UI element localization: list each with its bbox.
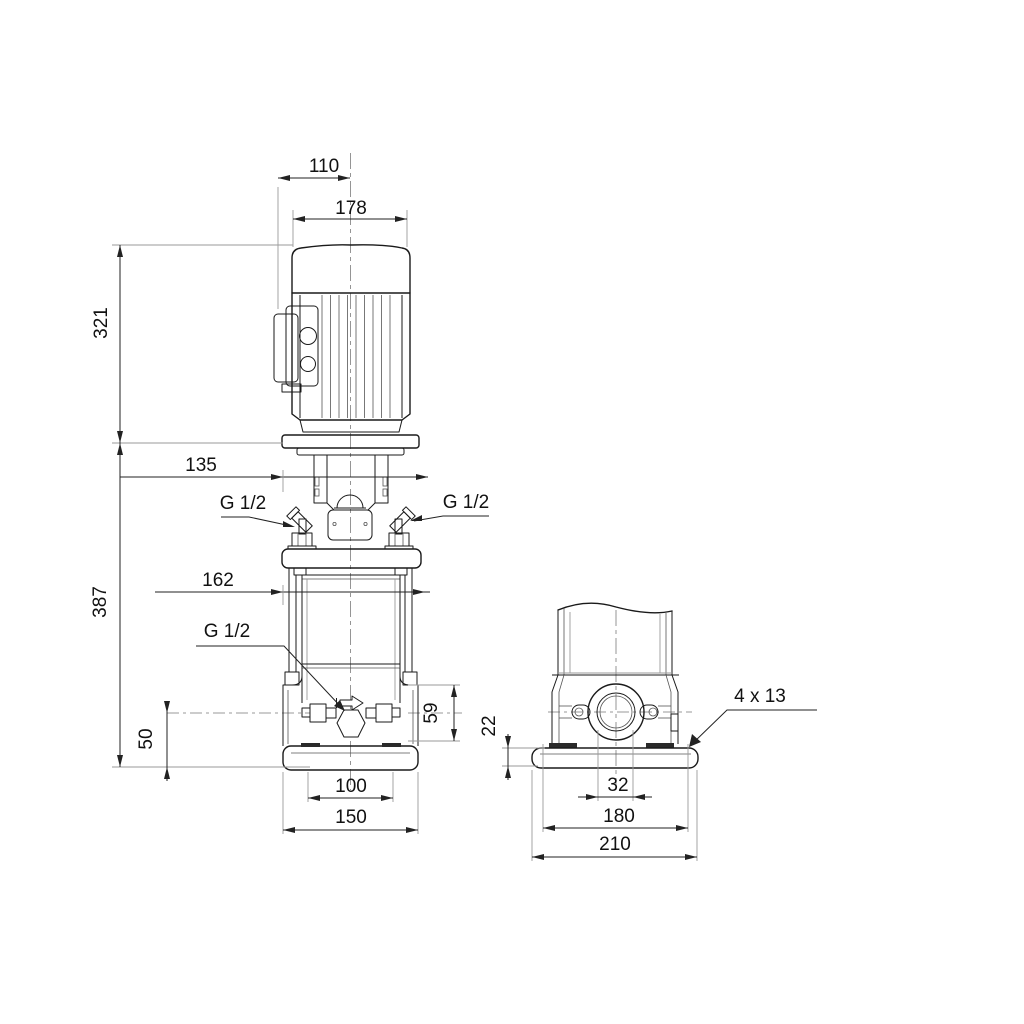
side-sleeve bbox=[552, 603, 679, 675]
callout-g12-right: G 1/2 bbox=[410, 492, 489, 521]
port-right bbox=[366, 704, 400, 722]
dim-100-label: 100 bbox=[335, 776, 367, 797]
side-view: 22 32 180 bbox=[479, 603, 817, 861]
tie-rod-nut-right bbox=[403, 672, 417, 685]
pump-head-flange bbox=[282, 549, 421, 575]
dim-100: 100 bbox=[308, 772, 393, 802]
dim-50-label: 50 bbox=[136, 728, 157, 749]
dim-135: 135 bbox=[120, 455, 428, 492]
dim-50: 50 bbox=[136, 701, 170, 781]
break-line bbox=[558, 603, 672, 613]
dim-178-label: 178 bbox=[335, 198, 367, 219]
dim-180-label: 180 bbox=[603, 806, 635, 827]
g12-drain-label: G 1/2 bbox=[204, 621, 250, 642]
side-tab bbox=[671, 714, 678, 731]
drawing-canvas: 110 178 321 bbox=[0, 0, 1024, 1024]
motor-stool bbox=[287, 455, 415, 549]
motor-top-cap bbox=[292, 245, 410, 293]
dim-110-label: 110 bbox=[309, 156, 339, 177]
cable-entry-top bbox=[300, 328, 317, 345]
dim-321: 321 bbox=[91, 245, 293, 443]
g12-right-label: G 1/2 bbox=[443, 492, 489, 513]
dim-22: 22 bbox=[479, 715, 545, 780]
tie-rod-nut-left bbox=[285, 672, 299, 685]
dim-387: 387 bbox=[90, 443, 310, 767]
dim-321-label: 321 bbox=[91, 307, 112, 339]
motor bbox=[274, 245, 419, 455]
callout-4x13: 4 x 13 bbox=[689, 686, 817, 747]
callout-g12-left: G 1/2 bbox=[220, 493, 295, 527]
g12-left-label: G 1/2 bbox=[220, 493, 266, 514]
side-base-plate bbox=[532, 748, 698, 768]
hex-nut-right bbox=[385, 533, 413, 549]
motor-fins bbox=[322, 295, 390, 418]
drain-plug-hex bbox=[337, 710, 365, 737]
coupling-guard bbox=[328, 510, 372, 540]
chamber-sleeve bbox=[285, 568, 417, 703]
dim-150-label: 150 bbox=[335, 807, 367, 828]
dim-178: 178 bbox=[293, 198, 407, 247]
side-clamp bbox=[549, 675, 678, 748]
gauge-plug-left bbox=[287, 507, 314, 534]
dim-135-label: 135 bbox=[185, 455, 217, 476]
motor-end-shield bbox=[300, 420, 402, 432]
dim-110: 110 bbox=[278, 156, 350, 309]
terminal-box bbox=[274, 306, 318, 392]
front-view: 110 178 321 bbox=[90, 153, 489, 834]
dim-59-label: 59 bbox=[421, 702, 442, 723]
dim-162-label: 162 bbox=[202, 570, 234, 591]
pump-dimension-drawing: 110 178 321 bbox=[0, 0, 1024, 1024]
dim-4x13-label: 4 x 13 bbox=[734, 686, 786, 707]
hex-nut-left bbox=[288, 533, 316, 549]
callout-g12-drain: G 1/2 bbox=[196, 621, 345, 711]
dim-210-label: 210 bbox=[599, 834, 631, 855]
shaft-dome bbox=[337, 495, 363, 508]
dim-32-label: 32 bbox=[607, 775, 628, 796]
dim-22-label: 22 bbox=[479, 715, 500, 736]
dim-387-label: 387 bbox=[90, 586, 111, 618]
cable-entry-bottom bbox=[301, 357, 316, 372]
dimensions-front: 110 178 321 bbox=[90, 156, 489, 834]
